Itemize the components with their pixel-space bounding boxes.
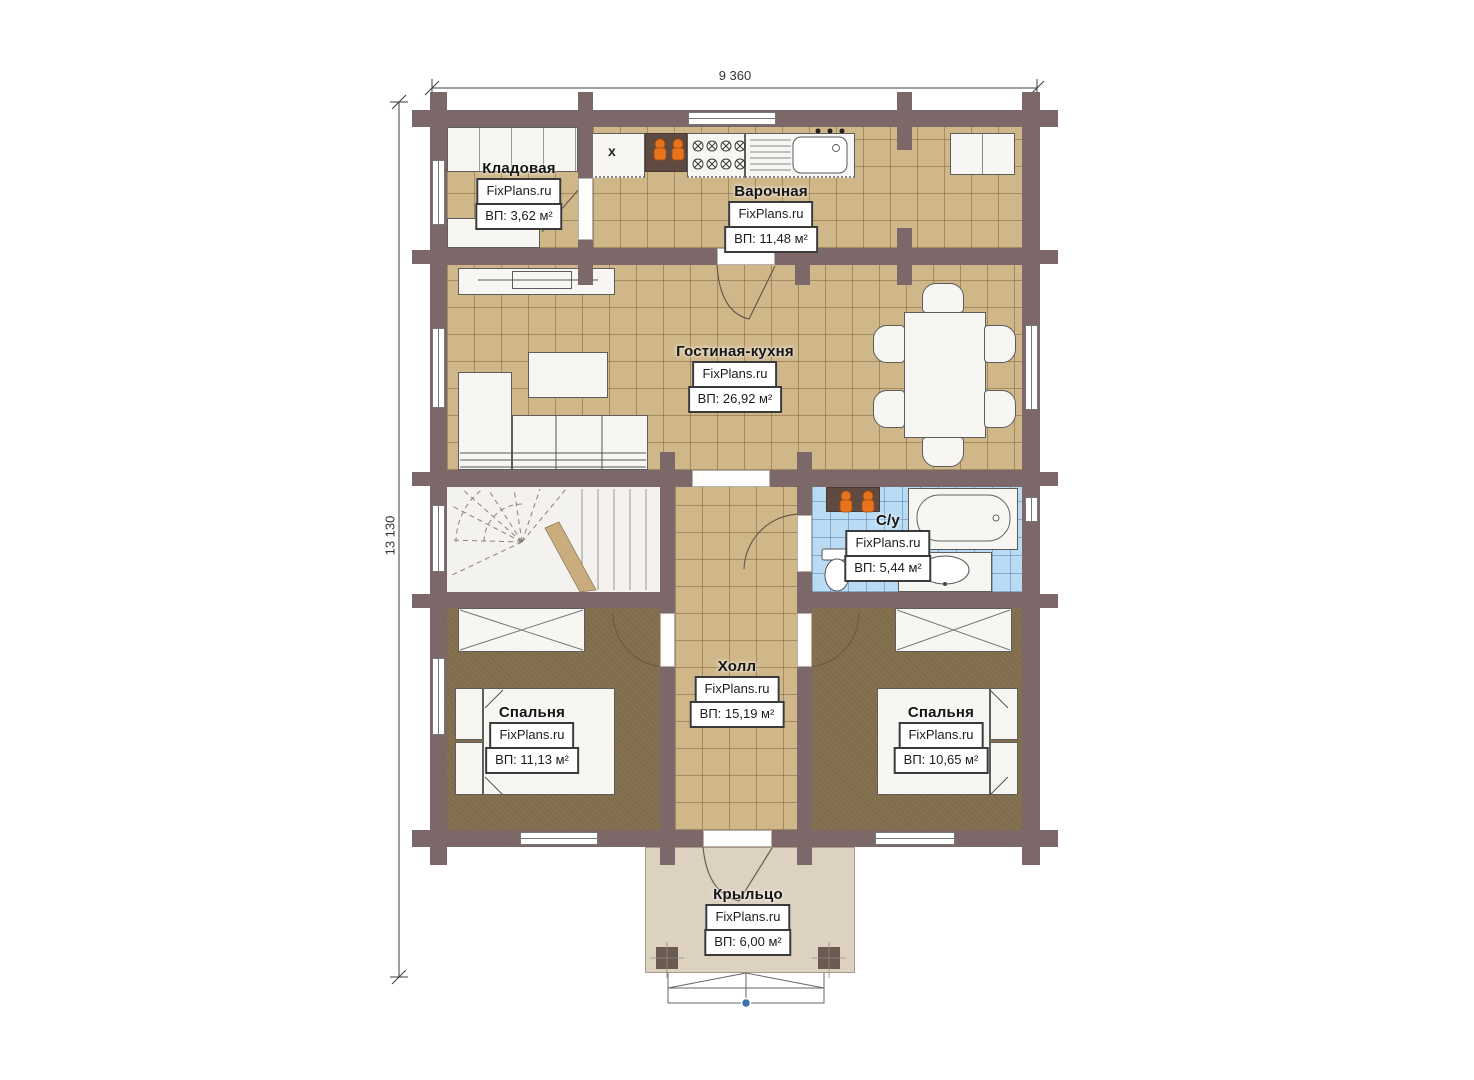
room-name: Холл	[718, 658, 756, 675]
room-area: ВП: 5,44 м²	[844, 555, 931, 582]
coffee-table	[528, 352, 608, 398]
window	[1025, 325, 1038, 410]
kitchen-stove	[687, 133, 745, 178]
wall-storage-kitchen	[578, 240, 593, 285]
window	[688, 112, 776, 125]
log-stub	[1022, 92, 1040, 110]
sofa-bottom-part	[512, 415, 648, 470]
wall-hall-right	[797, 667, 812, 865]
floor-plan-canvas: x	[0, 0, 1474, 1080]
log-stub	[1040, 472, 1058, 486]
dimension-height-label: 13 130	[383, 491, 398, 581]
dining-table	[904, 312, 986, 438]
wall-hall-right	[797, 452, 812, 515]
log-stub	[412, 830, 430, 847]
log-stub	[1040, 594, 1058, 608]
watermark: FixPlans.ru	[728, 201, 813, 228]
room-label-bedroom-right: Спальня FixPlans.ru ВП: 10,65 м²	[894, 704, 989, 774]
room-area: ВП: 6,00 м²	[704, 929, 791, 956]
room-area: ВП: 10,65 м²	[894, 747, 989, 774]
boiler-mark: x	[608, 143, 616, 159]
log-stub	[412, 472, 430, 486]
log-stub	[578, 92, 593, 110]
wall-hall-right	[797, 572, 812, 613]
wardrobe-left	[458, 608, 585, 652]
door-opening-bedroom-right	[797, 613, 812, 667]
window	[432, 328, 445, 408]
room-label-living: Гостиная-кухня FixPlans.ru ВП: 26,92 м²	[676, 343, 794, 413]
nightstand	[990, 688, 1018, 740]
room-label-porch: Крыльцо FixPlans.ru ВП: 6,00 м²	[704, 886, 791, 956]
watermark: FixPlans.ru	[898, 722, 983, 749]
window	[875, 832, 955, 845]
watermark: FixPlans.ru	[705, 904, 790, 931]
log-stub	[430, 92, 447, 110]
log-stub	[412, 110, 430, 127]
nightstand	[455, 688, 483, 740]
window	[520, 832, 598, 845]
kitchen-niche	[645, 133, 687, 172]
log-stub	[897, 228, 912, 285]
wall-hall-left	[660, 667, 675, 865]
dining-chair	[922, 283, 964, 313]
stairs-floor	[447, 487, 660, 592]
log-stub	[1022, 847, 1040, 865]
window	[1025, 497, 1038, 522]
window	[432, 658, 445, 735]
kitchen-sink-unit	[745, 133, 855, 178]
room-area: ВП: 11,48 м²	[724, 226, 818, 253]
door-opening-bathroom	[797, 515, 812, 572]
window	[432, 505, 445, 572]
window	[432, 160, 445, 225]
log-stub	[412, 594, 430, 608]
wall-storage-kitchen	[578, 127, 593, 178]
room-name: Варочная	[734, 183, 808, 200]
room-name: Спальня	[908, 704, 974, 721]
log-stub	[412, 250, 430, 264]
room-area: ВП: 15,19 м²	[690, 701, 785, 728]
wall-interior-c	[797, 592, 1040, 608]
dining-chair	[873, 325, 905, 363]
sofa-left-part	[458, 372, 512, 470]
log-stub	[897, 92, 912, 110]
room-name: Кладовая	[482, 160, 555, 177]
nightstand	[455, 742, 483, 795]
room-label-bathroom: С/у FixPlans.ru ВП: 5,44 м²	[844, 512, 931, 582]
wardrobe-right	[895, 608, 1012, 652]
towel-warmer-niche	[826, 487, 880, 512]
room-name: Спальня	[499, 704, 565, 721]
wall-interior-b	[430, 470, 692, 487]
room-area: ВП: 26,92 м²	[688, 386, 783, 413]
room-name: Крыльцо	[713, 886, 783, 903]
watermark: FixPlans.ru	[845, 530, 930, 557]
dining-chair	[984, 325, 1016, 363]
watermark: FixPlans.ru	[692, 361, 777, 388]
log-stub	[897, 127, 912, 150]
log-stub	[1040, 830, 1058, 847]
room-name: С/у	[876, 512, 900, 529]
dining-chair	[922, 437, 964, 467]
porch-post	[656, 947, 678, 969]
tv	[512, 271, 572, 289]
log-stub	[1040, 110, 1058, 127]
room-area: ВП: 3,62 м²	[475, 203, 562, 230]
passage-living-hall	[692, 470, 770, 487]
kitchen-cabinet	[950, 133, 1015, 175]
room-label-bedroom-left: Спальня FixPlans.ru ВП: 11,13 м²	[485, 704, 579, 774]
room-label-hall: Холл FixPlans.ru ВП: 15,19 м²	[690, 658, 785, 728]
door-opening-storage	[578, 178, 593, 240]
log-stub	[1040, 250, 1058, 264]
room-label-cooking: Варочная FixPlans.ru ВП: 11,48 м²	[724, 183, 818, 253]
door-opening-bedroom-left	[660, 613, 675, 667]
door-opening-entrance	[703, 830, 772, 847]
watermark: FixPlans.ru	[476, 178, 561, 205]
watermark: FixPlans.ru	[694, 676, 779, 703]
room-area: ВП: 11,13 м²	[485, 747, 579, 774]
wall-hall-left	[660, 452, 675, 613]
dimension-width-label: 9 360	[700, 68, 770, 83]
wall-interior-c	[430, 592, 675, 608]
log-stub	[430, 847, 447, 865]
kitchen-counter-boiler	[590, 133, 645, 178]
room-label-storage: Кладовая FixPlans.ru ВП: 3,62 м²	[475, 160, 562, 230]
nightstand	[990, 742, 1018, 795]
watermark: FixPlans.ru	[489, 722, 574, 749]
dining-chair	[873, 390, 905, 428]
room-name: Гостиная-кухня	[676, 343, 794, 360]
dining-chair	[984, 390, 1016, 428]
porch-post	[818, 947, 840, 969]
